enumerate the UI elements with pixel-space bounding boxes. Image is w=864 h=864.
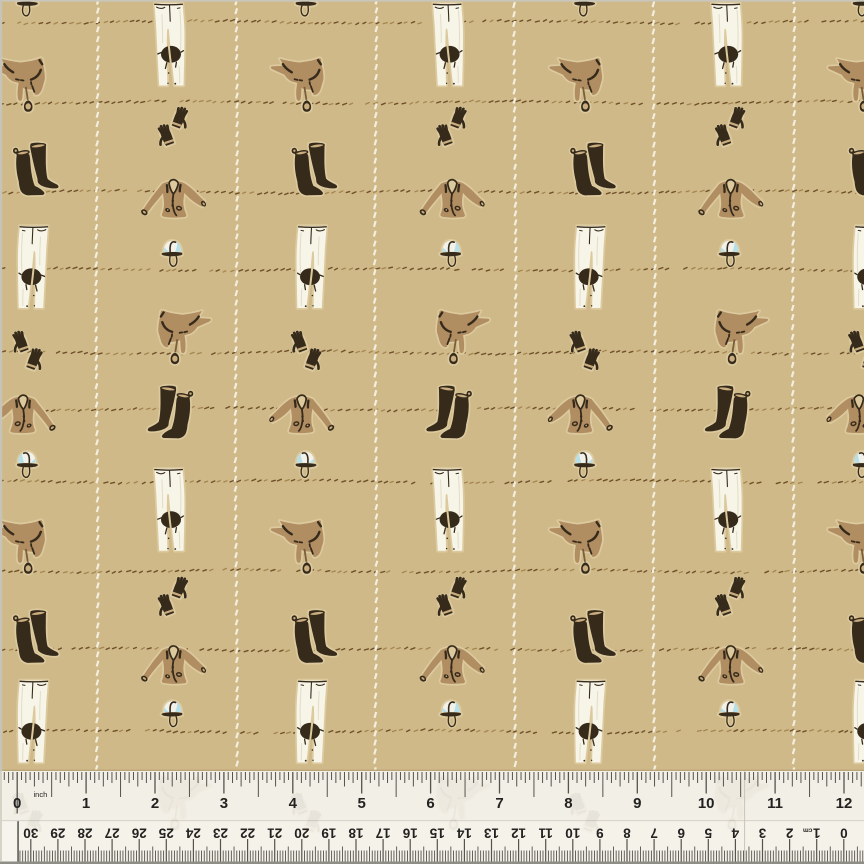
svg-text:17: 17 (376, 826, 391, 841)
svg-text:cm: cm (803, 827, 813, 834)
svg-text:0: 0 (840, 826, 848, 841)
svg-text:5: 5 (358, 795, 366, 812)
svg-text:10: 10 (565, 826, 580, 841)
svg-text:1: 1 (812, 826, 820, 841)
svg-text:29: 29 (50, 826, 65, 841)
svg-text:18: 18 (348, 826, 364, 841)
svg-text:13: 13 (484, 826, 500, 841)
svg-text:21: 21 (267, 826, 283, 841)
svg-text:5: 5 (704, 826, 712, 841)
svg-text:19: 19 (321, 826, 336, 841)
svg-text:inch: inch (34, 790, 48, 799)
svg-text:4: 4 (731, 826, 739, 841)
svg-text:11: 11 (767, 795, 783, 812)
svg-text:26: 26 (131, 826, 147, 841)
svg-text:30: 30 (23, 826, 38, 841)
svg-text:0: 0 (13, 795, 21, 812)
svg-text:14: 14 (456, 826, 472, 841)
svg-text:11: 11 (538, 826, 553, 841)
svg-text:25: 25 (158, 826, 174, 841)
svg-text:23: 23 (213, 826, 229, 841)
svg-text:3: 3 (758, 826, 766, 841)
svg-text:3: 3 (220, 795, 228, 812)
svg-text:10: 10 (698, 795, 715, 812)
svg-text:7: 7 (495, 795, 503, 812)
svg-text:8: 8 (623, 826, 631, 841)
svg-text:2: 2 (786, 826, 794, 841)
svg-text:15: 15 (429, 826, 445, 841)
svg-text:22: 22 (240, 826, 255, 841)
svg-text:2: 2 (151, 795, 159, 812)
svg-text:6: 6 (426, 795, 434, 812)
svg-text:9: 9 (633, 795, 641, 812)
svg-text:9: 9 (596, 826, 604, 841)
svg-text:8: 8 (564, 795, 572, 812)
svg-text:27: 27 (105, 826, 120, 841)
svg-text:6: 6 (677, 826, 685, 841)
svg-text:7: 7 (650, 826, 658, 841)
svg-text:24: 24 (185, 826, 201, 841)
svg-text:4: 4 (289, 795, 298, 812)
svg-text:12: 12 (836, 795, 853, 812)
svg-text:16: 16 (402, 826, 418, 841)
svg-text:1: 1 (82, 795, 90, 812)
svg-text:20: 20 (294, 826, 309, 841)
svg-text:28: 28 (77, 826, 93, 841)
svg-text:12: 12 (511, 826, 526, 841)
